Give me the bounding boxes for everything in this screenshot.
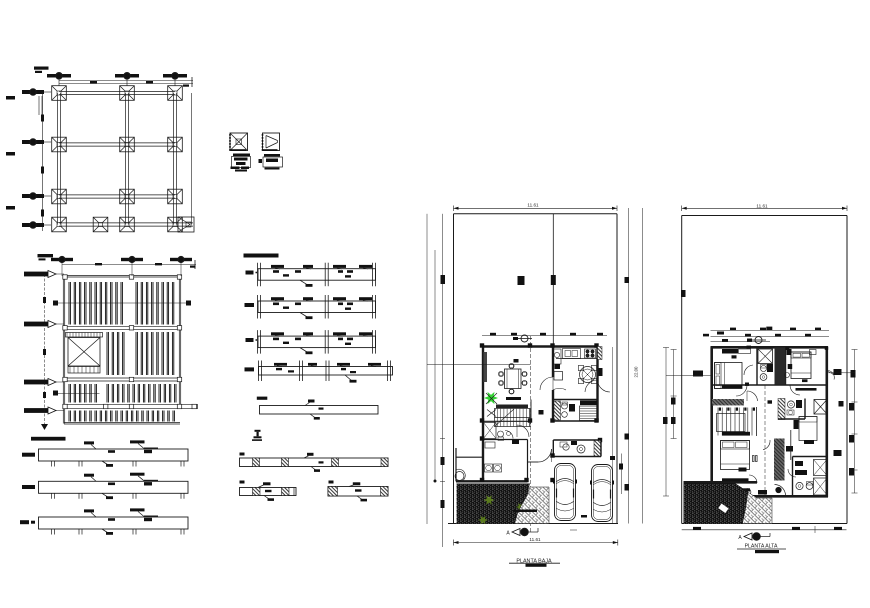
- svg-text:11.61: 11.61: [529, 537, 541, 542]
- svg-text:11.61: 11.61: [756, 204, 768, 209]
- svg-text:22.00: 22.00: [634, 366, 639, 378]
- svg-text:11.61: 11.61: [527, 203, 539, 208]
